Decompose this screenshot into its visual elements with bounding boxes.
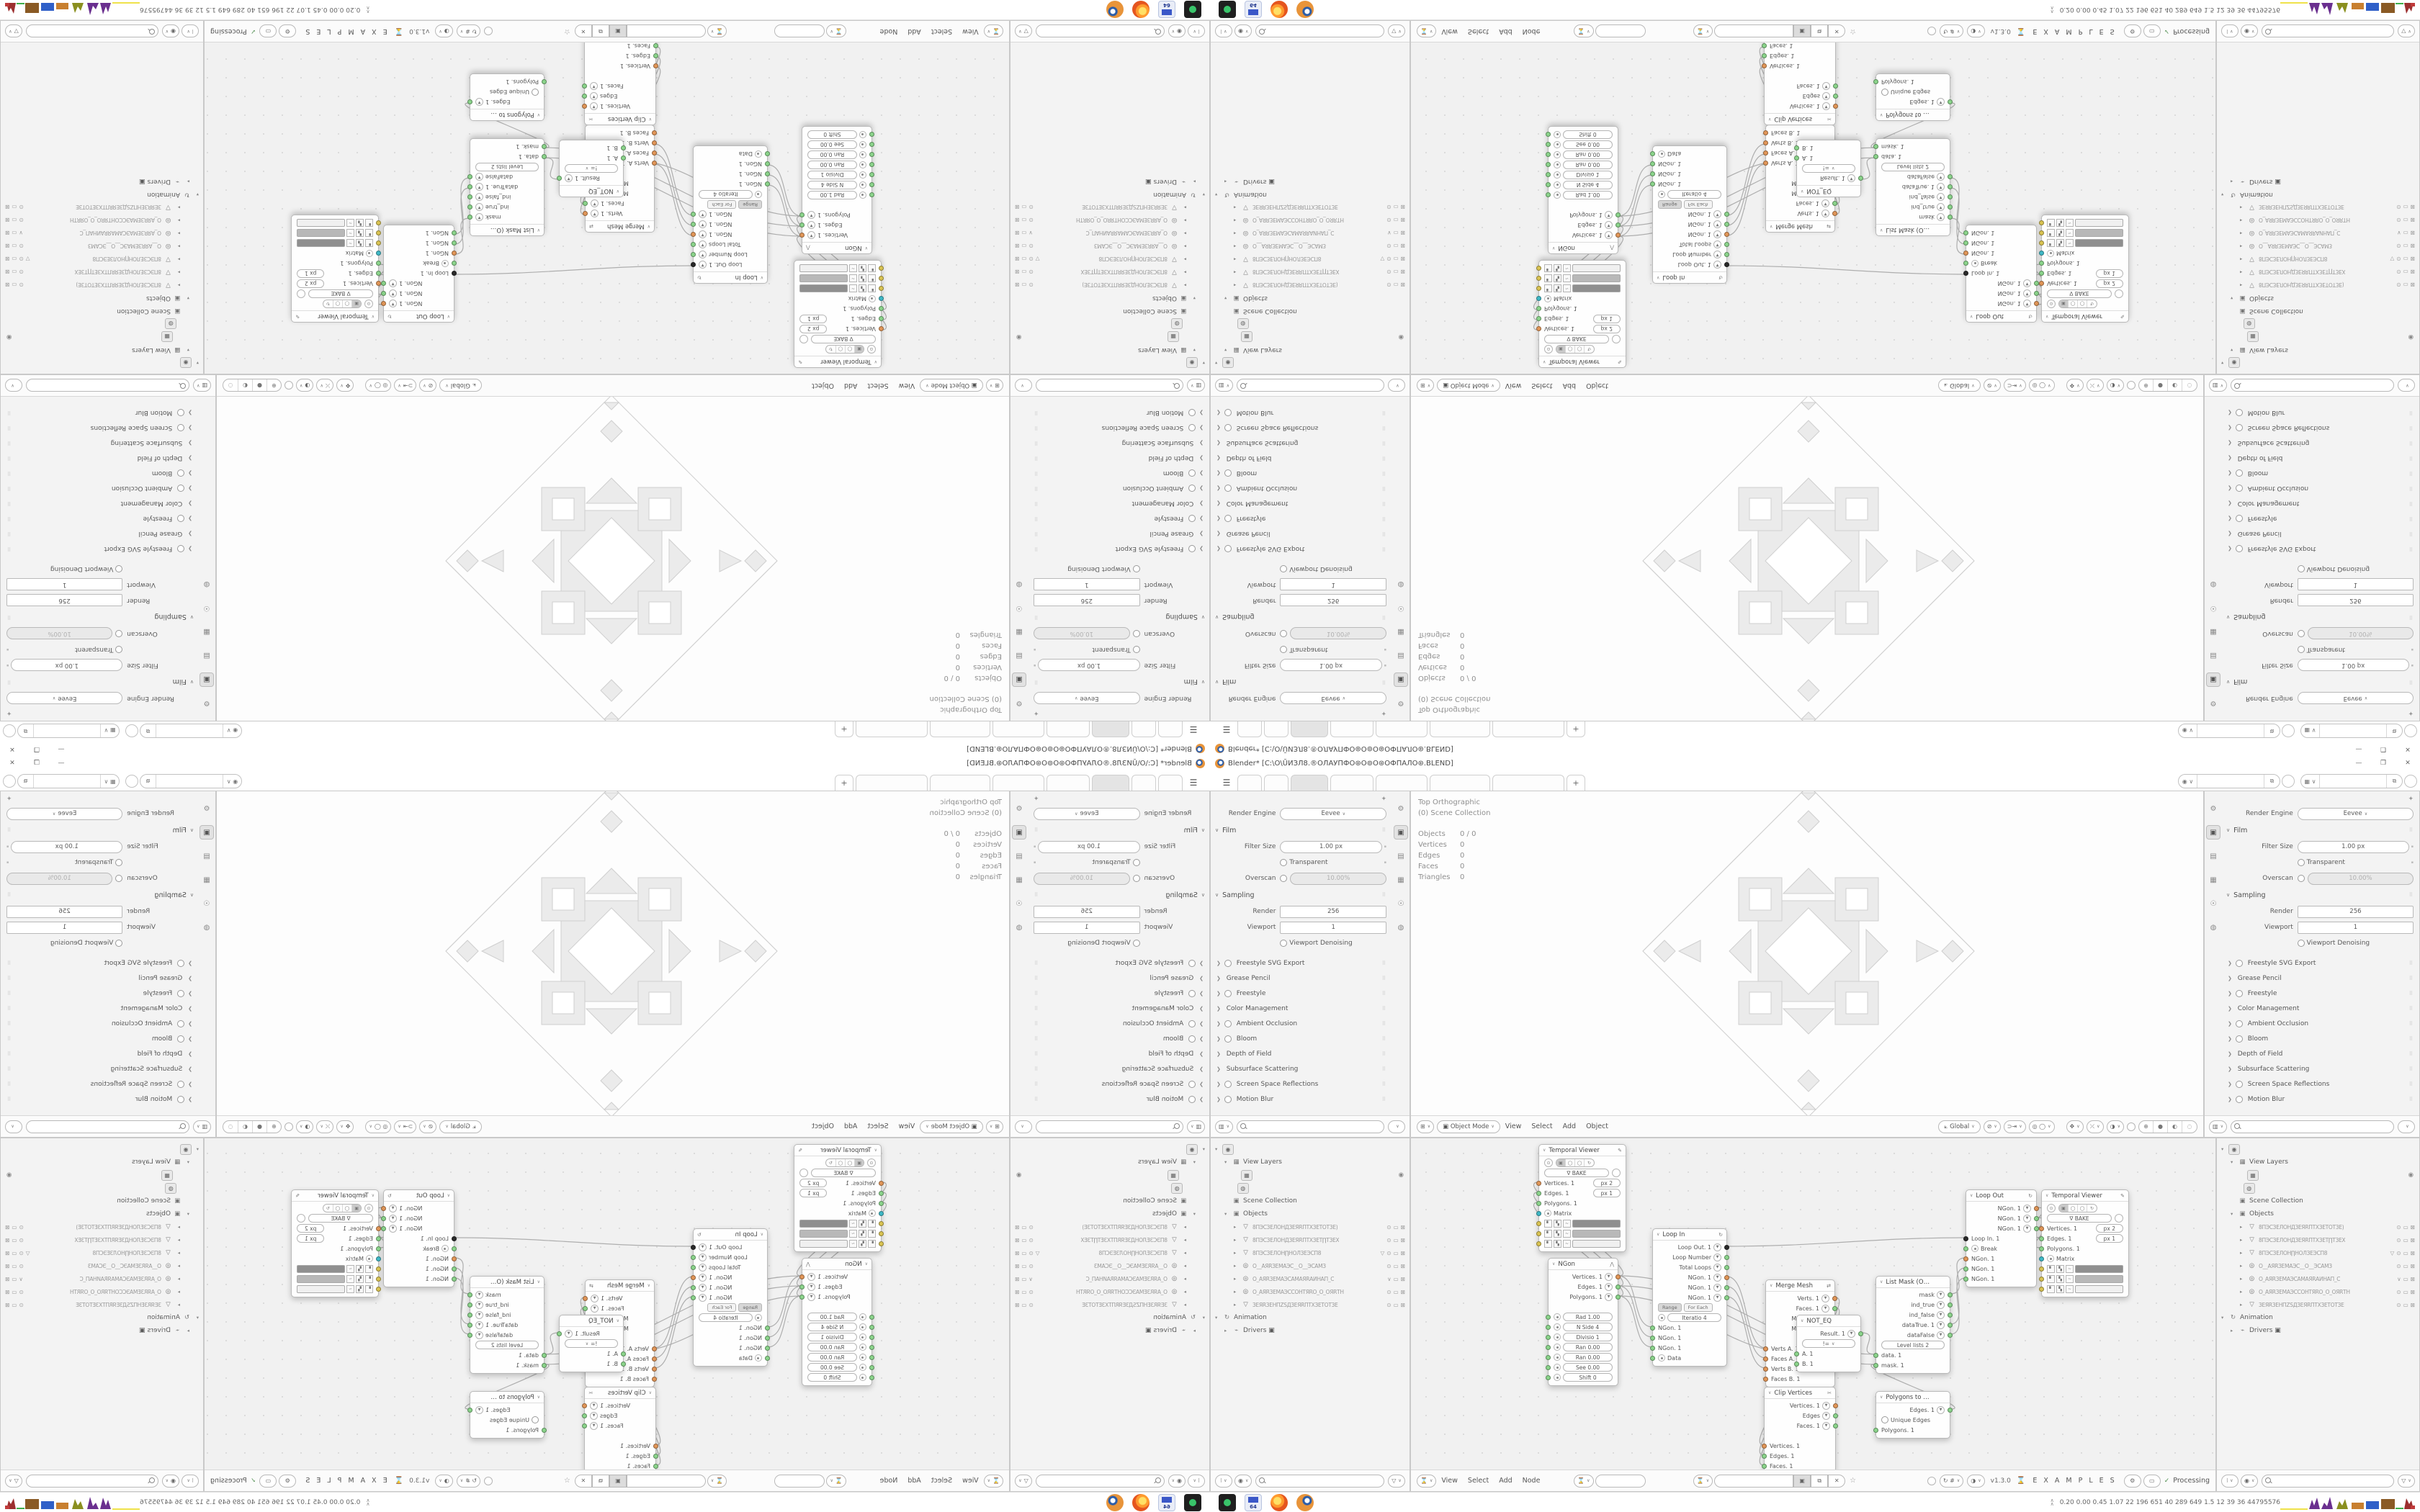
- socket-green[interactable]: [2039, 1246, 2044, 1251]
- object-row[interactable]: ▸◎О__АЯRЗЕМАЭС__О__ЭСАМЗ⊙▭⊠: [4, 240, 199, 253]
- node-header[interactable]: ∨Merge Mesh⇄: [586, 220, 654, 232]
- properties-tab-render[interactable]: ▣: [2206, 672, 2220, 687]
- hide-viewport-icon[interactable]: ▭: [2403, 282, 2408, 289]
- node-listmask[interactable]: ∨List Mask (O…mask▼ind_true▼ind_false▼da…: [470, 138, 544, 236]
- section-checkbox[interactable]: [1188, 1081, 1196, 1088]
- chevron-down-icon[interactable]: ∨: [2397, 1276, 2401, 1282]
- socket-green[interactable]: [621, 1351, 626, 1356]
- socket-green[interactable]: [1546, 1355, 1551, 1360]
- hide-eye-icon[interactable]: ⊙: [1386, 243, 1391, 250]
- object-row[interactable]: ▸◎О__АЯRЗЕМАЭС__О__ЭСАМЗ⊙▭⊠: [4, 1259, 199, 1272]
- snapping-dropdown[interactable]: ⊃⇥∨: [394, 1120, 416, 1133]
- properties-tab-render[interactable]: ▣: [1012, 672, 1026, 687]
- section-checkbox[interactable]: [177, 1096, 184, 1103]
- hide-eye-icon[interactable]: ⊙: [2396, 1289, 2401, 1295]
- dropdown-circle-icon[interactable]: ▼: [590, 93, 598, 101]
- node-header[interactable]: ∨Polygons to …: [470, 1392, 544, 1403]
- section-checkbox[interactable]: [2236, 1081, 2243, 1088]
- socket-green[interactable]: [1963, 241, 1968, 246]
- toggle-icon[interactable]: [2047, 250, 2054, 257]
- dropdown-circle-icon[interactable]: ▼: [1847, 1330, 1855, 1338]
- dropdown-circle-icon[interactable]: ▼: [389, 300, 397, 308]
- section-checkbox[interactable]: [177, 485, 184, 492]
- socket-orange[interactable]: [652, 1356, 657, 1362]
- objects-collection-row[interactable]: ▾▣Objects: [1215, 1207, 1407, 1220]
- socket-green[interactable]: [1546, 1315, 1551, 1320]
- section-checkbox[interactable]: [1224, 990, 1232, 997]
- value-field[interactable]: Shift 0: [1563, 1373, 1613, 1382]
- collapsed-section-depth-of-field[interactable]: ❯ Depth of Field⠿: [6, 1046, 194, 1061]
- properties-tab-scene[interactable]: ☉: [2206, 601, 2220, 616]
- disable-render-icon[interactable]: ⊠: [2411, 204, 2415, 211]
- socket-green[interactable]: [1615, 1295, 1621, 1300]
- scene-selector-icon[interactable]: ◉ ∨: [2179, 724, 2197, 737]
- dropdown-circle-icon[interactable]: ▼: [1713, 1284, 1721, 1292]
- workspace-tab-5[interactable]: [992, 721, 1044, 737]
- socket-green[interactable]: [2039, 261, 2044, 266]
- menu-object[interactable]: Object: [812, 382, 834, 390]
- color-swatch[interactable]: [2075, 1275, 2123, 1283]
- value-field[interactable]: Rad 1.00: [807, 1313, 857, 1321]
- copy-datablock-button[interactable]: ⧉: [592, 1475, 609, 1488]
- properties-tab-tool[interactable]: ⚙: [200, 696, 214, 711]
- view-toggle-button[interactable]: ⊙: [1544, 1158, 1553, 1167]
- collapsed-section-screen-space-reflections[interactable]: ❯ Screen Space Reflections⠿: [2226, 1076, 2414, 1092]
- node-header[interactable]: ∨NGon⋀: [802, 1259, 871, 1270]
- toggle-icon[interactable]: [859, 1313, 866, 1320]
- node-ngon[interactable]: ∨NGon⋀Vertices. 1▼Edges. 1▼Polygons. 1▼R…: [802, 1258, 872, 1386]
- samples-render-field[interactable]: 256: [1280, 906, 1386, 918]
- socket-orange[interactable]: [376, 1226, 381, 1231]
- toggle-icon[interactable]: [442, 260, 449, 267]
- node-header[interactable]: ∨Merge Mesh⇄: [1766, 1280, 1834, 1292]
- disable-render-icon[interactable]: ⊠: [5, 243, 9, 250]
- disable-render-icon[interactable]: ⊠: [1401, 1224, 1405, 1230]
- node-header[interactable]: ∨Polygons to …: [1876, 109, 1950, 120]
- gizmo-dropdown[interactable]: ⤫∨: [316, 1120, 333, 1133]
- hide-viewport-icon[interactable]: ▭: [1394, 1250, 1399, 1256]
- properties-tab-world[interactable]: ◍: [1394, 577, 1408, 592]
- view-layer-item-button[interactable]: ▦: [2247, 332, 2259, 343]
- swatch-button-a[interactable]: ▘: [365, 1285, 373, 1293]
- hide-viewport-icon[interactable]: ▭: [1394, 282, 1399, 289]
- editor-type-button[interactable]: ▥∨: [193, 379, 211, 392]
- disable-render-icon[interactable]: ⊠: [1015, 243, 1019, 250]
- socket-orange[interactable]: [2039, 282, 2044, 287]
- collapsed-section-freestyle-svg-export[interactable]: ❯ Freestyle SVG Export⠿: [1034, 955, 1205, 971]
- shading-rendered-button[interactable]: ◌: [223, 1121, 238, 1133]
- socket-green[interactable]: [1546, 1335, 1551, 1340]
- properties-tab-view-layer[interactable]: ▦: [1012, 873, 1026, 887]
- socket-green[interactable]: [1546, 1325, 1551, 1330]
- dropdown-circle-icon[interactable]: ▼: [1937, 99, 1945, 107]
- view-layer-selector-new-button[interactable]: [3, 775, 16, 788]
- transparent-checkbox[interactable]: [1280, 859, 1287, 866]
- disable-render-icon[interactable]: ⊠: [5, 204, 9, 211]
- menu-object[interactable]: Object: [1586, 382, 1608, 390]
- node-loopin[interactable]: ∨Loop In↻Loop Out. 1▼Loop Number▼Total L…: [1652, 145, 1727, 284]
- view-layer-selector-icon[interactable]: ▦ ∨: [2301, 775, 2320, 788]
- toggle-icon[interactable]: [859, 1374, 866, 1381]
- swatch-button-a[interactable]: ▘: [868, 1220, 876, 1228]
- hide-viewport-icon[interactable]: ▭: [2403, 1263, 2408, 1269]
- gizmo-dropdown[interactable]: ⤫∨: [316, 379, 333, 392]
- node-header[interactable]: ∨Clip Vertices✂: [1765, 113, 1835, 125]
- node-header[interactable]: ∨Merge Mesh⇄: [586, 1280, 654, 1292]
- dropdown-circle-icon[interactable]: ▼: [1713, 1254, 1721, 1261]
- socket-green[interactable]: [799, 223, 805, 228]
- color-swatch[interactable]: [799, 1230, 848, 1238]
- display-mode-button-1[interactable]: ◯: [2069, 300, 2078, 307]
- editor-type-button[interactable]: ⌛∨: [1417, 25, 1436, 38]
- value-field[interactable]: px 1: [2096, 269, 2123, 278]
- view-layer-selector-name-input[interactable]: [2320, 775, 2386, 788]
- shading-mini-dropdown[interactable]: ◑∨: [435, 1475, 452, 1488]
- close-button[interactable]: ✕: [0, 757, 24, 770]
- socket-green[interactable]: [2034, 1226, 2039, 1231]
- toggle-icon[interactable]: [859, 1344, 866, 1351]
- editor-type-button[interactable]: ⌛∨: [984, 25, 1003, 38]
- socket-green[interactable]: [799, 213, 805, 218]
- object-row[interactable]: ▸▽8ПЭСЗЕЛОНДЗЕЯRПТХЗЕТ∏ТЗЕХ⊙▭⊠: [1013, 266, 1205, 279]
- dropdown-circle-icon[interactable]: ▼: [1822, 1402, 1830, 1410]
- display-mode-button-2[interactable]: ◯: [333, 300, 342, 307]
- dropdown-circle-icon[interactable]: ▼: [389, 290, 397, 298]
- section-header-sampling[interactable]: ∨Sampling⠿: [2226, 886, 2414, 904]
- disable-render-icon[interactable]: ⊠: [1015, 230, 1019, 237]
- level-lists-field[interactable]: Level lists 2: [475, 163, 539, 171]
- segment-foreach-button[interactable]: For Each: [707, 200, 736, 209]
- socket-green[interactable]: [557, 1331, 562, 1336]
- properties-tab-render[interactable]: ▣: [2206, 825, 2220, 840]
- node-header[interactable]: ∨NOT_EQ: [560, 185, 623, 197]
- shading-rendered-button[interactable]: ◌: [223, 380, 238, 392]
- dropdown-circle-icon[interactable]: ▼: [2023, 280, 2031, 288]
- hide-eye-icon[interactable]: ⊙: [19, 282, 23, 289]
- blend-file-row[interactable]: ▾◉: [2221, 1143, 2416, 1156]
- value-field[interactable]: Divisio 1: [807, 171, 857, 179]
- properties-tab-world[interactable]: ◍: [1012, 577, 1026, 592]
- object-row[interactable]: ▸◎О_АЯRЗЕМАЭСАМАЯRАИНАП_С∨▭⊠: [2221, 1272, 2416, 1285]
- scene-selector-name-input[interactable]: [2197, 775, 2264, 788]
- color-swatch[interactable]: [2075, 240, 2123, 248]
- operator-dropdown[interactable]: !=∨: [1802, 164, 1855, 173]
- section-checkbox[interactable]: [1224, 1020, 1232, 1027]
- socket-green[interactable]: [381, 292, 386, 297]
- socket-green[interactable]: [1832, 1306, 1837, 1311]
- animation-row[interactable]: ▾↻Animation: [4, 188, 199, 201]
- object-row[interactable]: ▸◎О__АЯRЗЕМАЭС__О__ЭСАМЗ⊙▭⊠: [2221, 1259, 2416, 1272]
- value-field[interactable]: Iteratio 4: [1667, 190, 1721, 199]
- section-checkbox[interactable]: [1224, 470, 1232, 477]
- hide-viewport-icon[interactable]: ▭: [2403, 1237, 2408, 1243]
- fake-user-button[interactable]: ▣: [609, 1475, 627, 1488]
- hide-viewport-icon[interactable]: ▭: [1021, 1237, 1026, 1243]
- section-header-sampling[interactable]: ∨Sampling⠿: [1215, 886, 1386, 904]
- segment-foreach-button[interactable]: For Each: [1684, 1303, 1713, 1312]
- disable-render-icon[interactable]: ⊠: [1015, 217, 1019, 224]
- dropdown-circle-icon[interactable]: ▼: [2023, 1205, 2031, 1212]
- object-row[interactable]: ▸▽ЗЕЯRЗЕНПZSДЗЕЯRПТХЗЕТОТЗЕ⊙▭⊠: [1013, 1298, 1205, 1311]
- socket-green[interactable]: [1794, 156, 1799, 161]
- collapsed-section-bloom[interactable]: ❯ Bloom⠿: [6, 466, 194, 481]
- swatch-button-b[interactable]: ▚: [356, 220, 364, 228]
- dropdown-circle-icon[interactable]: ▼: [389, 1215, 397, 1223]
- pin-icon[interactable]: ☆: [564, 27, 570, 35]
- drivers-row[interactable]: ▸⌁Drivers ▣: [1215, 175, 1407, 188]
- fake-user-button[interactable]: ▣: [1793, 1475, 1811, 1488]
- node-ngon[interactable]: ∨NGon⋀Vertices. 1▼Edges. 1▼Polygons. 1▼R…: [1548, 126, 1618, 254]
- collapsed-section-freestyle-svg-export[interactable]: ❯ Freestyle SVG Export⠿: [1215, 541, 1386, 557]
- object-row[interactable]: ▸▽8ПЭСЗЕЛОНДЗЕЯRПТХЗЕТ∏ТЗЕХ⊙▭⊠: [2221, 1233, 2416, 1246]
- socket-green[interactable]: [2039, 1236, 2044, 1241]
- disable-render-icon[interactable]: ⊠: [1401, 1276, 1405, 1282]
- workspace-tab-4[interactable]: [1330, 775, 1373, 791]
- tree-subfield[interactable]: [774, 25, 825, 38]
- scene-collection-row[interactable]: ▣Scene Collection: [4, 305, 199, 318]
- viewport-canvas[interactable]: Top Orthographic (0) Scene Collection Ob…: [1411, 395, 2205, 721]
- editor-type-button[interactable]: ⌛∨: [1417, 1475, 1436, 1488]
- socket-green[interactable]: [1963, 1246, 1968, 1251]
- swatch-button-a[interactable]: ▘: [2047, 230, 2055, 238]
- mode-dropdown[interactable]: ▣ Object Mode∨: [920, 1120, 983, 1133]
- hide-viewport-icon[interactable]: ▭: [1394, 1224, 1399, 1230]
- collapsed-section-depth-of-field[interactable]: ❯ Depth of Field⠿: [2226, 451, 2414, 466]
- socket-green[interactable]: [1724, 1285, 1729, 1290]
- overscan-field[interactable]: 10.00%: [1290, 873, 1386, 885]
- collapsed-section-ambient-occlusion[interactable]: ❯ Ambient Occlusion⠿: [1215, 481, 1386, 496]
- checkbox[interactable]: [1280, 630, 1287, 637]
- swatch-button-c[interactable]: ~: [346, 240, 354, 248]
- toggle-icon[interactable]: [859, 141, 866, 148]
- disable-render-icon[interactable]: ⊠: [1015, 1289, 1019, 1295]
- scene-selector-name-input[interactable]: [156, 724, 223, 737]
- disable-render-icon[interactable]: ⊠: [1401, 1302, 1405, 1308]
- render-engine-dropdown[interactable]: Eevee∨: [1034, 808, 1140, 820]
- socket-green[interactable]: [1762, 54, 1767, 59]
- scene-collection-row[interactable]: ▣Scene Collection: [1215, 305, 1407, 318]
- socket-orange[interactable]: [583, 1296, 588, 1301]
- hide-eye-icon[interactable]: ⊙: [19, 217, 23, 224]
- workspace-tab-6[interactable]: [930, 775, 990, 791]
- animation-row[interactable]: ▾↻Animation: [1215, 188, 1407, 201]
- xray-toggle[interactable]: [2127, 1122, 2136, 1131]
- add-workspace-button[interactable]: +: [835, 775, 853, 791]
- collapsed-section-ambient-occlusion[interactable]: ❯ Ambient Occlusion⠿: [1034, 481, 1205, 496]
- outliner-filter-button[interactable]: ▽∨: [2398, 1475, 2415, 1488]
- display-mode-button-0[interactable]: ▣: [351, 1205, 361, 1212]
- checkbox[interactable]: [115, 630, 122, 637]
- scene-selector-name-input[interactable]: [156, 775, 223, 788]
- disable-render-icon[interactable]: ⊠: [5, 1276, 9, 1282]
- outliner-filter-mode-dropdown[interactable]: ◉∨: [1168, 1475, 1186, 1488]
- display-mode-button-3[interactable]: ↻: [2087, 1205, 2097, 1212]
- socket-green[interactable]: [583, 202, 588, 207]
- swatch-button-a[interactable]: ▘: [868, 285, 876, 293]
- outliner-display-mode-dropdown[interactable]: ⦚∨: [2221, 25, 2238, 38]
- socket-green[interactable]: [691, 1255, 696, 1260]
- taskbar-recorder-icon[interactable]: [1219, 1, 1236, 19]
- bake-options-button[interactable]: [1612, 335, 1621, 343]
- node-listmask[interactable]: ∨List Mask (O…mask▼ind_true▼ind_false▼da…: [1875, 138, 1950, 236]
- socket-green[interactable]: [452, 1266, 457, 1272]
- menu-object[interactable]: Object: [812, 1122, 834, 1130]
- menu-hamburger-icon[interactable]: ☰: [1216, 775, 1237, 791]
- objects-collection-row[interactable]: ▾▣Objects: [2221, 292, 2416, 305]
- section-checkbox[interactable]: [1188, 1096, 1196, 1103]
- display-mode-button-2[interactable]: ◯: [835, 346, 845, 353]
- menu-view[interactable]: View: [1441, 1477, 1458, 1485]
- collapsed-section-grease-pencil[interactable]: ❯ Grease Pencil⠿: [1034, 971, 1205, 986]
- socket-green[interactable]: [1963, 1277, 1968, 1282]
- node-header[interactable]: ∨List Mask (O…: [1876, 224, 1950, 235]
- tree-type-button[interactable]: ⌛∨: [826, 25, 846, 38]
- socket-orange[interactable]: [879, 1181, 884, 1186]
- toggle-icon[interactable]: [366, 250, 373, 257]
- blend-file-button[interactable]: ◉: [1222, 1144, 1234, 1155]
- world-row[interactable]: ◍: [1013, 318, 1205, 330]
- toggle-icon[interactable]: [859, 1364, 866, 1371]
- display-mode-button-0[interactable]: ▣: [351, 300, 361, 307]
- swatch-button-b[interactable]: ▚: [1554, 1220, 1561, 1228]
- collapsed-section-freestyle[interactable]: ❯ Freestyle⠿: [1215, 986, 1386, 1001]
- viewport-canvas[interactable]: Top Orthographic (0) Scene Collection Ob…: [215, 395, 1009, 721]
- drivers-row[interactable]: ▸⌁Drivers ▣: [1215, 1324, 1407, 1337]
- node-header[interactable]: ∨Clip Vertices✂: [585, 1387, 655, 1399]
- socket-green[interactable]: [381, 282, 386, 287]
- tree-type-button[interactable]: ⌛∨: [1574, 1475, 1593, 1488]
- hide-eye-icon[interactable]: ⊙: [1028, 1289, 1033, 1295]
- properties-search-input[interactable]: [2231, 1120, 2394, 1133]
- hide-viewport-icon[interactable]: ▭: [1021, 282, 1026, 289]
- swatch-button-a[interactable]: ▘: [1544, 265, 1552, 273]
- node-header[interactable]: ∨NOT_EQ: [560, 1315, 623, 1327]
- disable-render-icon[interactable]: ⊠: [1401, 230, 1405, 237]
- scene-collection-row[interactable]: ▣Scene Collection: [1215, 1194, 1407, 1207]
- snapping-dropdown[interactable]: ⊃⇥∨: [2004, 379, 2026, 392]
- swatch-button-c[interactable]: ~: [2066, 220, 2074, 228]
- hide-eye-icon[interactable]: ⊙: [19, 1289, 23, 1295]
- hide-eye-icon[interactable]: ⊙: [1386, 217, 1391, 224]
- dropdown-circle-icon[interactable]: ▼: [475, 99, 483, 107]
- view-layer-selector-name-input[interactable]: [34, 724, 100, 737]
- node-clip[interactable]: ∨Clip Vertices✂Vertices. 1▼Edges▼Faces. …: [584, 1387, 656, 1471]
- node-header[interactable]: ∨Merge Mesh⇄: [1766, 220, 1834, 232]
- taskbar-blender-icon[interactable]: [1296, 1494, 1314, 1511]
- section-checkbox[interactable]: [1188, 516, 1196, 523]
- view-layer-item-button[interactable]: ▦: [2247, 1170, 2259, 1181]
- operator-dropdown[interactable]: !=∨: [1802, 1339, 1855, 1348]
- blend-file-row[interactable]: ▾◉: [2221, 356, 2416, 369]
- socket-orange[interactable]: [582, 104, 587, 109]
- hide-viewport-icon[interactable]: ▭: [2403, 243, 2408, 250]
- overscan-field[interactable]: 10.00%: [6, 628, 112, 640]
- add-workspace-button[interactable]: +: [1567, 775, 1585, 791]
- collapsed-section-bloom[interactable]: ❯ Bloom⠿: [1215, 466, 1386, 481]
- section-header-sampling[interactable]: ∨Sampling⠿: [1034, 608, 1205, 626]
- properties-tab-output[interactable]: ▤: [1394, 849, 1408, 863]
- hide-eye-icon[interactable]: ⊙: [1028, 256, 1033, 263]
- samples-render-field[interactable]: 256: [1280, 595, 1386, 607]
- hide-viewport-icon[interactable]: ▭: [1394, 243, 1399, 250]
- shading-material-button[interactable]: ◐: [238, 1121, 252, 1133]
- hide-viewport-icon[interactable]: ▭: [12, 269, 17, 276]
- section-header-film[interactable]: ∨Film⠿: [2226, 673, 2414, 690]
- object-row[interactable]: ▸◎О__АЯRЗЕМАЭС__О__ЭСАМЗ⊙▭⊠: [1215, 240, 1407, 253]
- dropdown-circle-icon[interactable]: ▼: [591, 1305, 599, 1313]
- hide-eye-icon[interactable]: ⊙: [19, 204, 23, 211]
- outliner-display-mode-dropdown[interactable]: ⦚∨: [1215, 1475, 1232, 1488]
- editor-type-button[interactable]: ▥∨: [2209, 379, 2227, 392]
- taskbar-floppy64-icon[interactable]: [1158, 1494, 1175, 1511]
- filter-size-field[interactable]: 1.00 px: [11, 660, 122, 672]
- pin-icon[interactable]: ✦: [1034, 796, 1039, 803]
- display-mode-button-2[interactable]: ◯: [333, 1205, 342, 1212]
- bake-options-button[interactable]: [1612, 1169, 1621, 1177]
- collapsed-section-color-management[interactable]: ❯ Color Management⠿: [1215, 1001, 1386, 1016]
- viewport-denoising-checkbox[interactable]: [1280, 940, 1287, 947]
- blend-file-button[interactable]: ◉: [1186, 1144, 1198, 1155]
- socket-green[interactable]: [1833, 1413, 1838, 1418]
- node-tv2[interactable]: ∨Temporal Viewer✎⊙▣◯◯↻∇ BAKEVertices. 1p…: [2041, 1189, 2129, 1297]
- section-checkbox[interactable]: [177, 546, 184, 553]
- dropdown-circle-icon[interactable]: ▼: [1822, 1422, 1830, 1430]
- viewport-canvas[interactable]: Top Orthographic (0) Scene Collection Ob…: [215, 791, 1009, 1117]
- properties-tab-output[interactable]: ▤: [200, 649, 214, 663]
- socket-yellow[interactable]: [1536, 276, 1541, 282]
- toggle-icon[interactable]: [1544, 295, 1551, 302]
- socket-orange[interactable]: [2034, 1206, 2039, 1211]
- node-header[interactable]: ∨Clip Vertices✂: [585, 113, 655, 125]
- dropdown-circle-icon[interactable]: ▼: [475, 1321, 483, 1329]
- object-row[interactable]: ▸▽8ПЭСЗЕЛОНДЗЕЯRПТХЗЕТОТЗЕ)⊙▭⊠: [2221, 279, 2416, 292]
- samples-render-field[interactable]: 256: [1034, 906, 1140, 918]
- section-checkbox[interactable]: [1188, 410, 1196, 417]
- value-field[interactable]: N Side 4: [1563, 1323, 1613, 1331]
- node-ngon[interactable]: ∨NGon⋀Vertices. 1▼Edges. 1▼Polygons. 1▼R…: [802, 126, 872, 254]
- menu-hamburger-icon[interactable]: ☰: [1183, 775, 1204, 791]
- add-workspace-button[interactable]: +: [1567, 721, 1585, 737]
- dropdown-circle-icon[interactable]: ▼: [699, 1254, 707, 1261]
- view-layer-selector-icon[interactable]: ▦ ∨: [100, 775, 119, 788]
- socket-green[interactable]: [467, 1292, 472, 1297]
- dropdown-circle-icon[interactable]: ▼: [1822, 1412, 1830, 1420]
- collapsed-section-screen-space-reflections[interactable]: ❯ Screen Space Reflections⠿: [1215, 1076, 1386, 1092]
- collapsed-section-motion-blur[interactable]: ❯ Motion Blur⠿: [1034, 1092, 1205, 1107]
- view-toggle-button[interactable]: ⊙: [867, 1158, 876, 1167]
- value-field[interactable]: Ran 0.00: [1563, 161, 1613, 169]
- orientation-dropdown[interactable]: ⟀ Global∨: [1938, 379, 1980, 392]
- collapsed-section-color-management[interactable]: ❯ Color Management⠿: [6, 496, 194, 511]
- dropdown-circle-icon[interactable]: ▼: [1605, 1293, 1613, 1301]
- collapsed-section-freestyle[interactable]: ❯ Freestyle⠿: [2226, 511, 2414, 526]
- swatch-button-a[interactable]: ▘: [1544, 1220, 1552, 1228]
- menu-select[interactable]: Select: [867, 382, 888, 390]
- hide-eye-icon[interactable]: ⊙: [1386, 1302, 1391, 1308]
- collapsed-section-depth-of-field[interactable]: ❯ Depth of Field⠿: [1215, 451, 1386, 466]
- hide-viewport-icon[interactable]: ▭: [2403, 1302, 2408, 1308]
- socket-yellow[interactable]: [376, 1266, 381, 1272]
- render-engine-dropdown[interactable]: Eevee∨: [2298, 808, 2414, 820]
- socket-green[interactable]: [467, 1302, 472, 1308]
- node-noteq[interactable]: ∨NOT_EQResult. 1▼!=∨A. 1B. 1: [1796, 1315, 1861, 1372]
- filter-icon[interactable]: ▽: [1381, 1250, 1385, 1256]
- filter-icon[interactable]: ▽: [2390, 256, 2395, 263]
- animation-row[interactable]: ▾↻Animation: [1013, 188, 1205, 201]
- hide-viewport-icon[interactable]: ▭: [1394, 230, 1399, 237]
- menu-view[interactable]: View: [962, 1477, 979, 1485]
- socket-orange[interactable]: [1763, 151, 1768, 156]
